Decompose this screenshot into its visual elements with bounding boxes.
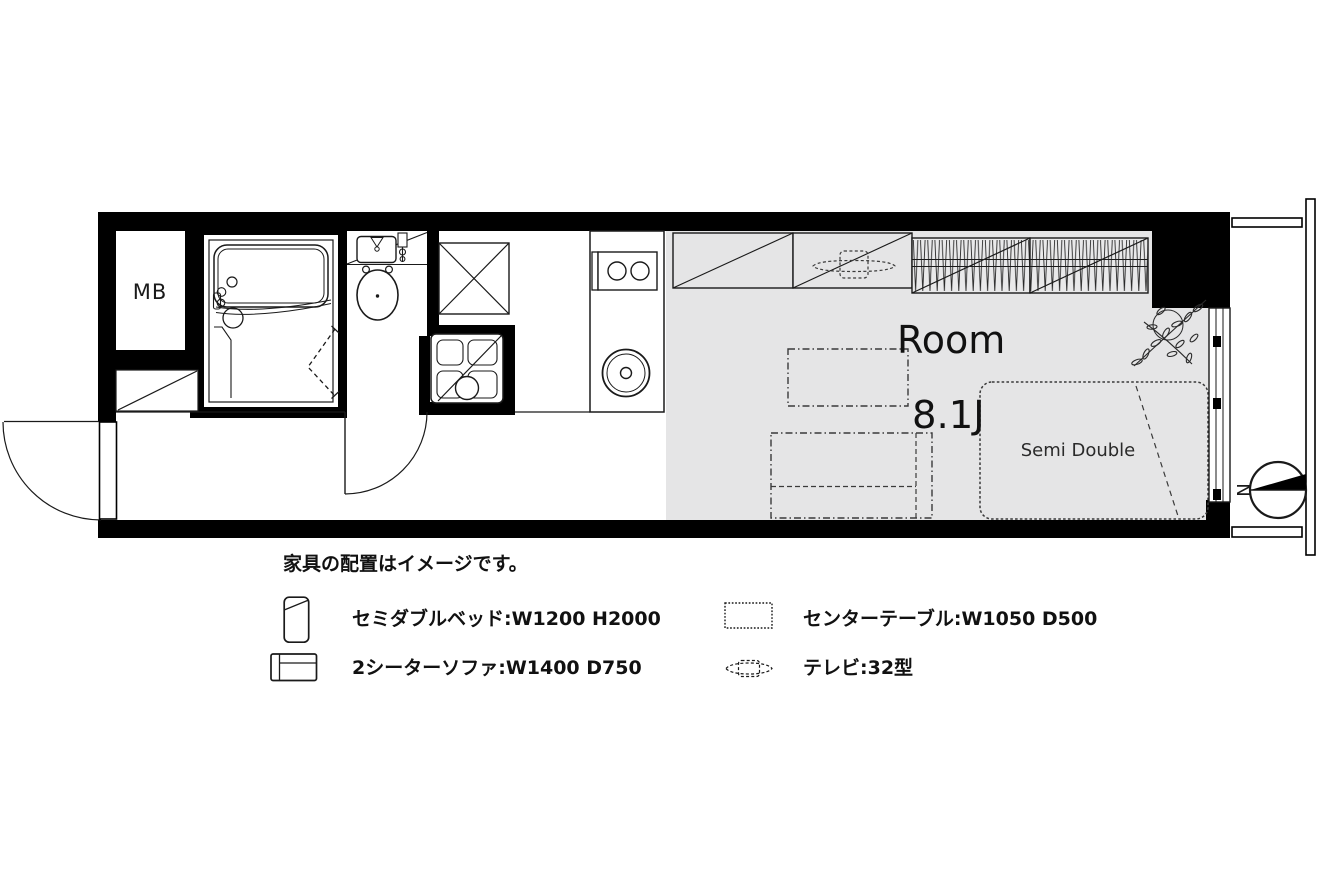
bed-label: Semi Double (1021, 440, 1136, 461)
window-icon (1209, 308, 1230, 502)
north-arrow-icon: N (1234, 462, 1306, 518)
legend-table-icon (724, 602, 774, 630)
toilet-door-icon (345, 412, 427, 494)
legend-sofa-label: 2シーターソファ:W1400 D750 (352, 653, 642, 680)
mb-label: MB (133, 280, 168, 304)
water-heater-icon (398, 233, 407, 262)
north-label: N (1234, 483, 1255, 496)
toilet-icon (357, 266, 398, 320)
entrance-door-icon (3, 422, 117, 521)
meter-box: MB (116, 231, 185, 350)
stove-icon (592, 252, 657, 290)
legend-tv-icon (724, 658, 774, 679)
legend-bed-icon (283, 596, 310, 644)
kitchen (590, 231, 664, 412)
storage-row (673, 233, 1148, 293)
room-name-label: Room (897, 318, 1005, 362)
closet-hanger-icon (912, 238, 1148, 293)
toilet-room (347, 233, 427, 321)
bathroom (204, 235, 339, 407)
washing-machine-space-icon (439, 243, 509, 314)
legend-bed-label: セミダブルベッド:W1200 H2000 (352, 604, 661, 631)
room-size-label: 8.1J (912, 393, 985, 438)
vanity-icon (357, 237, 396, 263)
legend-table-label: センターテーブル:W1050 D500 (803, 604, 1097, 631)
legend-sofa-icon (270, 653, 318, 682)
floor-plan-drawing: MB (0, 0, 1330, 886)
legend-tv-label: テレビ:32型 (803, 653, 913, 680)
storage-icon (673, 233, 912, 288)
laundry-pan-icon (431, 334, 503, 403)
furniture-disclaimer: 家具の配置はイメージです。 (283, 549, 528, 576)
entrance-nook (116, 370, 198, 411)
apartment-floor-plan: MB (0, 0, 1330, 886)
